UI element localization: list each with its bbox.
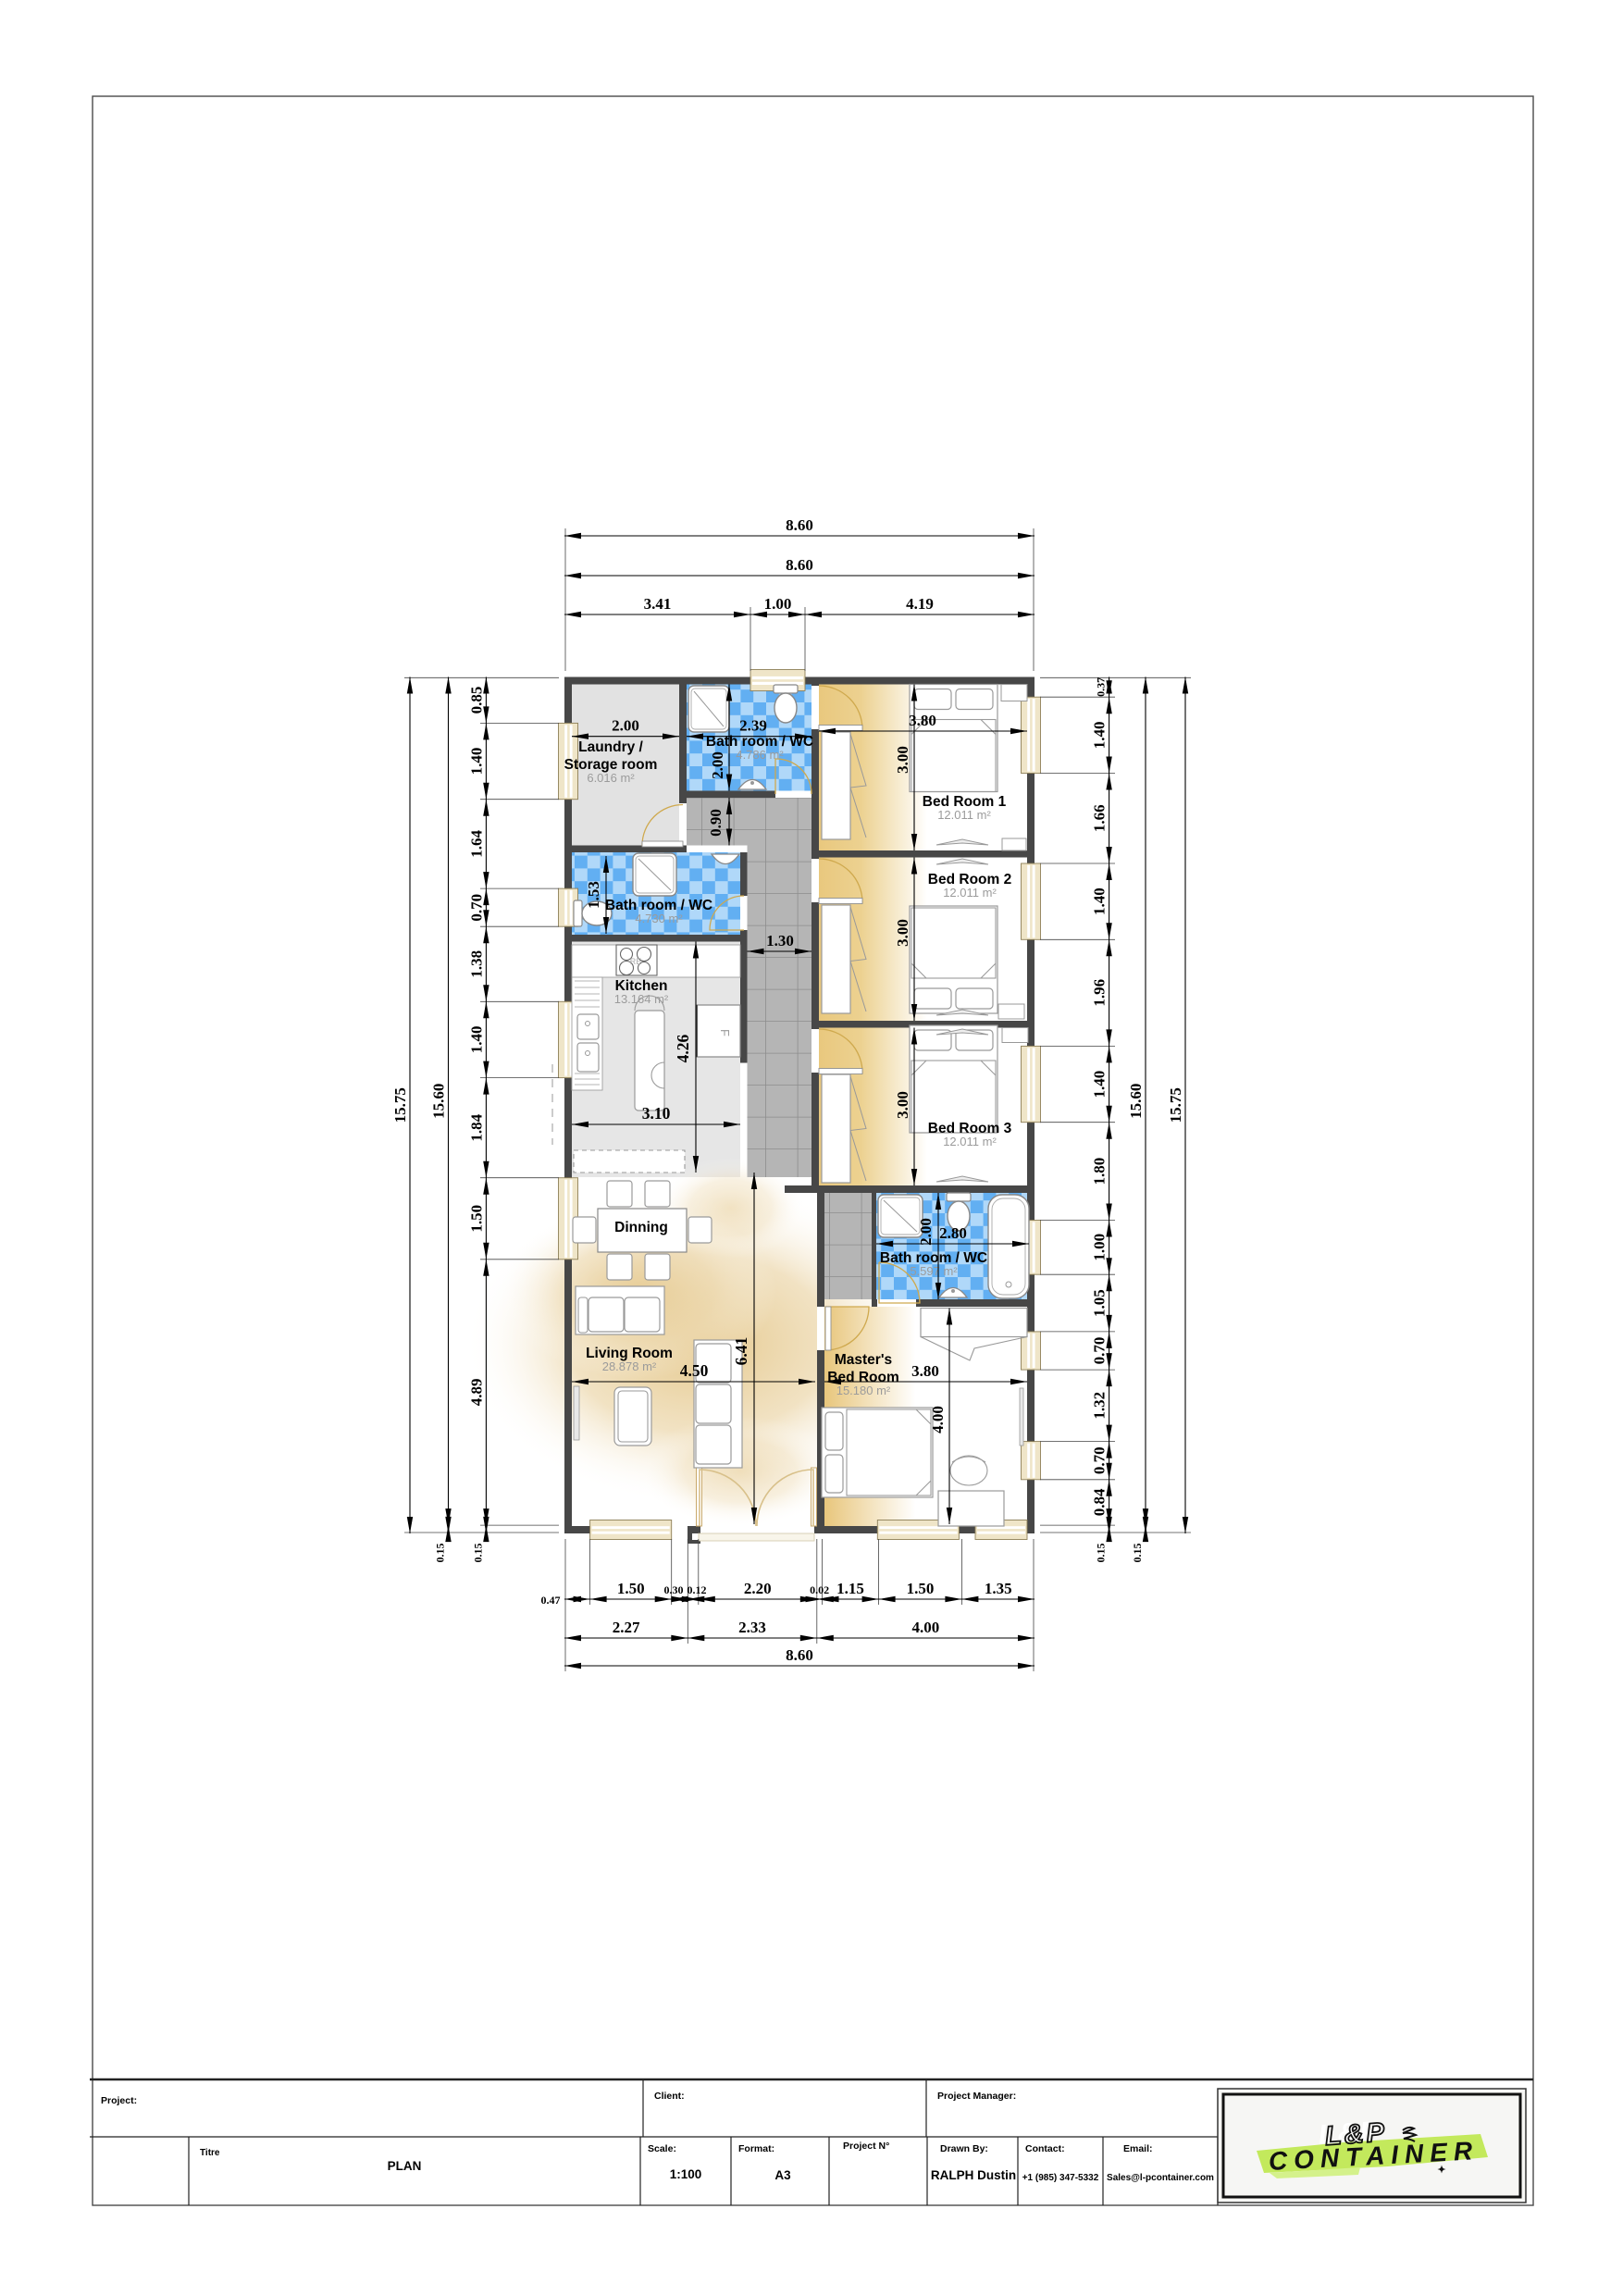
svg-text:4.730 m²: 4.730 m² [635, 912, 683, 925]
svg-text:28.878 m²: 28.878 m² [602, 1359, 657, 1373]
svg-text:0.02: 0.02 [810, 1583, 829, 1596]
svg-text:Master's: Master's [835, 1352, 892, 1368]
svg-text:12.011 m²: 12.011 m² [943, 886, 997, 900]
svg-text:0.15: 0.15 [471, 1544, 484, 1563]
svg-text:4.50: 4.50 [680, 1361, 709, 1380]
svg-text:A3: A3 [774, 2168, 791, 2182]
svg-text:Drawn By:: Drawn By: [940, 2143, 988, 2154]
svg-text:1.96: 1.96 [1091, 979, 1109, 1007]
svg-text:2.80: 2.80 [939, 1224, 967, 1242]
svg-text:Sales@l-pcontainer.com: Sales@l-pcontainer.com [1107, 2173, 1214, 2183]
svg-text:0.15: 0.15 [1131, 1544, 1144, 1563]
svg-text:4.89: 4.89 [467, 1379, 485, 1407]
svg-text:0.70: 0.70 [467, 894, 485, 922]
svg-text:5.597 m²: 5.597 m² [910, 1264, 958, 1278]
svg-text:0.90: 0.90 [707, 809, 725, 837]
svg-text:1.40: 1.40 [1091, 887, 1109, 915]
svg-text:3.00: 3.00 [894, 1091, 911, 1119]
svg-text:1.35: 1.35 [985, 1580, 1012, 1597]
svg-text:2.00: 2.00 [612, 717, 639, 735]
svg-text:F: F [718, 1029, 732, 1036]
svg-text:3.80: 3.80 [909, 712, 936, 729]
svg-text:1.64: 1.64 [467, 830, 485, 858]
svg-text:1.80: 1.80 [1091, 1158, 1109, 1185]
svg-text:Client:: Client: [654, 2091, 685, 2102]
svg-text:1.40: 1.40 [467, 1026, 485, 1054]
svg-text:0.37: 0.37 [1095, 677, 1108, 697]
svg-text:Dinning: Dinning [614, 1220, 668, 1235]
svg-text:1.05: 1.05 [1091, 1289, 1109, 1317]
svg-text:1.40: 1.40 [1091, 1071, 1109, 1098]
svg-text:0.15: 0.15 [434, 1544, 447, 1563]
svg-text:1.50: 1.50 [617, 1580, 645, 1597]
svg-text:+1 (985) 347-5332: +1 (985) 347-5332 [1022, 2173, 1099, 2183]
svg-text:0.30: 0.30 [664, 1583, 684, 1596]
svg-text:13.164 m²: 13.164 m² [614, 992, 669, 1006]
svg-text:Project Manager:: Project Manager: [937, 2091, 1016, 2102]
svg-text:Email:: Email: [1123, 2143, 1153, 2154]
svg-text:3.00: 3.00 [894, 746, 911, 774]
svg-text:1.38: 1.38 [467, 950, 485, 978]
svg-text:6.016 m²: 6.016 m² [587, 771, 635, 785]
svg-text:0.15: 0.15 [1095, 1544, 1108, 1563]
svg-text:15.75: 15.75 [1167, 1087, 1184, 1123]
svg-text:4.786 m²: 4.786 m² [736, 748, 784, 762]
svg-text:4.00: 4.00 [929, 1406, 947, 1433]
svg-text:15.180 m²: 15.180 m² [836, 1384, 891, 1397]
svg-text:12.011 m²: 12.011 m² [943, 1135, 997, 1148]
svg-text:15.60: 15.60 [1127, 1084, 1145, 1119]
svg-text:1.40: 1.40 [1091, 722, 1109, 750]
svg-text:12.011 m²: 12.011 m² [937, 808, 991, 822]
svg-text:1.40: 1.40 [467, 748, 485, 776]
svg-text:3.41: 3.41 [644, 595, 672, 613]
svg-text:4.26: 4.26 [674, 1034, 692, 1062]
svg-text:1.00: 1.00 [764, 595, 792, 613]
svg-text:1.53: 1.53 [585, 881, 602, 909]
svg-text:0.12: 0.12 [688, 1583, 707, 1596]
svg-text:Project:: Project: [101, 2095, 137, 2106]
svg-text:✦: ✦ [1437, 2165, 1445, 2176]
svg-text:Scale:: Scale: [648, 2143, 676, 2154]
svg-text:2.33: 2.33 [738, 1619, 766, 1636]
svg-text:1.15: 1.15 [836, 1580, 864, 1597]
svg-text:8.60: 8.60 [786, 556, 813, 574]
svg-text:Titre: Titre [200, 2148, 220, 2158]
svg-text:1.32: 1.32 [1091, 1392, 1109, 1420]
svg-text:Laundry /: Laundry / [578, 739, 643, 755]
svg-text:3.80: 3.80 [911, 1362, 939, 1380]
svg-text:6.41: 6.41 [732, 1337, 750, 1366]
svg-text:1.00: 1.00 [1091, 1234, 1109, 1261]
svg-text:1.84: 1.84 [467, 1113, 485, 1141]
svg-text:3.10: 3.10 [642, 1104, 671, 1123]
svg-text:4.19: 4.19 [906, 595, 934, 613]
svg-text:1.50: 1.50 [467, 1205, 485, 1233]
svg-text:2.00: 2.00 [917, 1218, 935, 1246]
svg-text:3.00: 3.00 [894, 919, 911, 947]
svg-text:4.00: 4.00 [912, 1619, 940, 1636]
svg-text:RE: RE [630, 957, 642, 966]
svg-text:1.66: 1.66 [1091, 804, 1109, 832]
svg-text:1:100: 1:100 [670, 2167, 702, 2181]
svg-text:Project N°: Project N° [843, 2141, 889, 2152]
svg-text:8.60: 8.60 [786, 516, 813, 534]
svg-text:1.30: 1.30 [766, 932, 794, 949]
svg-text:Contact:: Contact: [1025, 2143, 1065, 2154]
svg-text:2.20: 2.20 [744, 1580, 772, 1597]
svg-text:0.47: 0.47 [541, 1594, 561, 1607]
svg-text:PLAN: PLAN [388, 2159, 422, 2173]
svg-text:0.85: 0.85 [467, 687, 485, 714]
svg-text:0.70: 0.70 [1091, 1337, 1109, 1365]
svg-text:0.70: 0.70 [1091, 1446, 1109, 1474]
svg-text:15.60: 15.60 [430, 1084, 448, 1119]
svg-text:2.27: 2.27 [613, 1619, 640, 1636]
svg-text:1.50: 1.50 [907, 1580, 935, 1597]
svg-text:Format:: Format: [738, 2143, 774, 2154]
svg-text:15.75: 15.75 [391, 1087, 409, 1123]
svg-text:0.84: 0.84 [1091, 1488, 1109, 1516]
svg-text:RALPH Dustin: RALPH Dustin [931, 2168, 1016, 2182]
svg-text:2.39: 2.39 [739, 717, 767, 735]
svg-text:8.60: 8.60 [786, 1646, 813, 1664]
svg-text:2.00: 2.00 [709, 751, 726, 779]
